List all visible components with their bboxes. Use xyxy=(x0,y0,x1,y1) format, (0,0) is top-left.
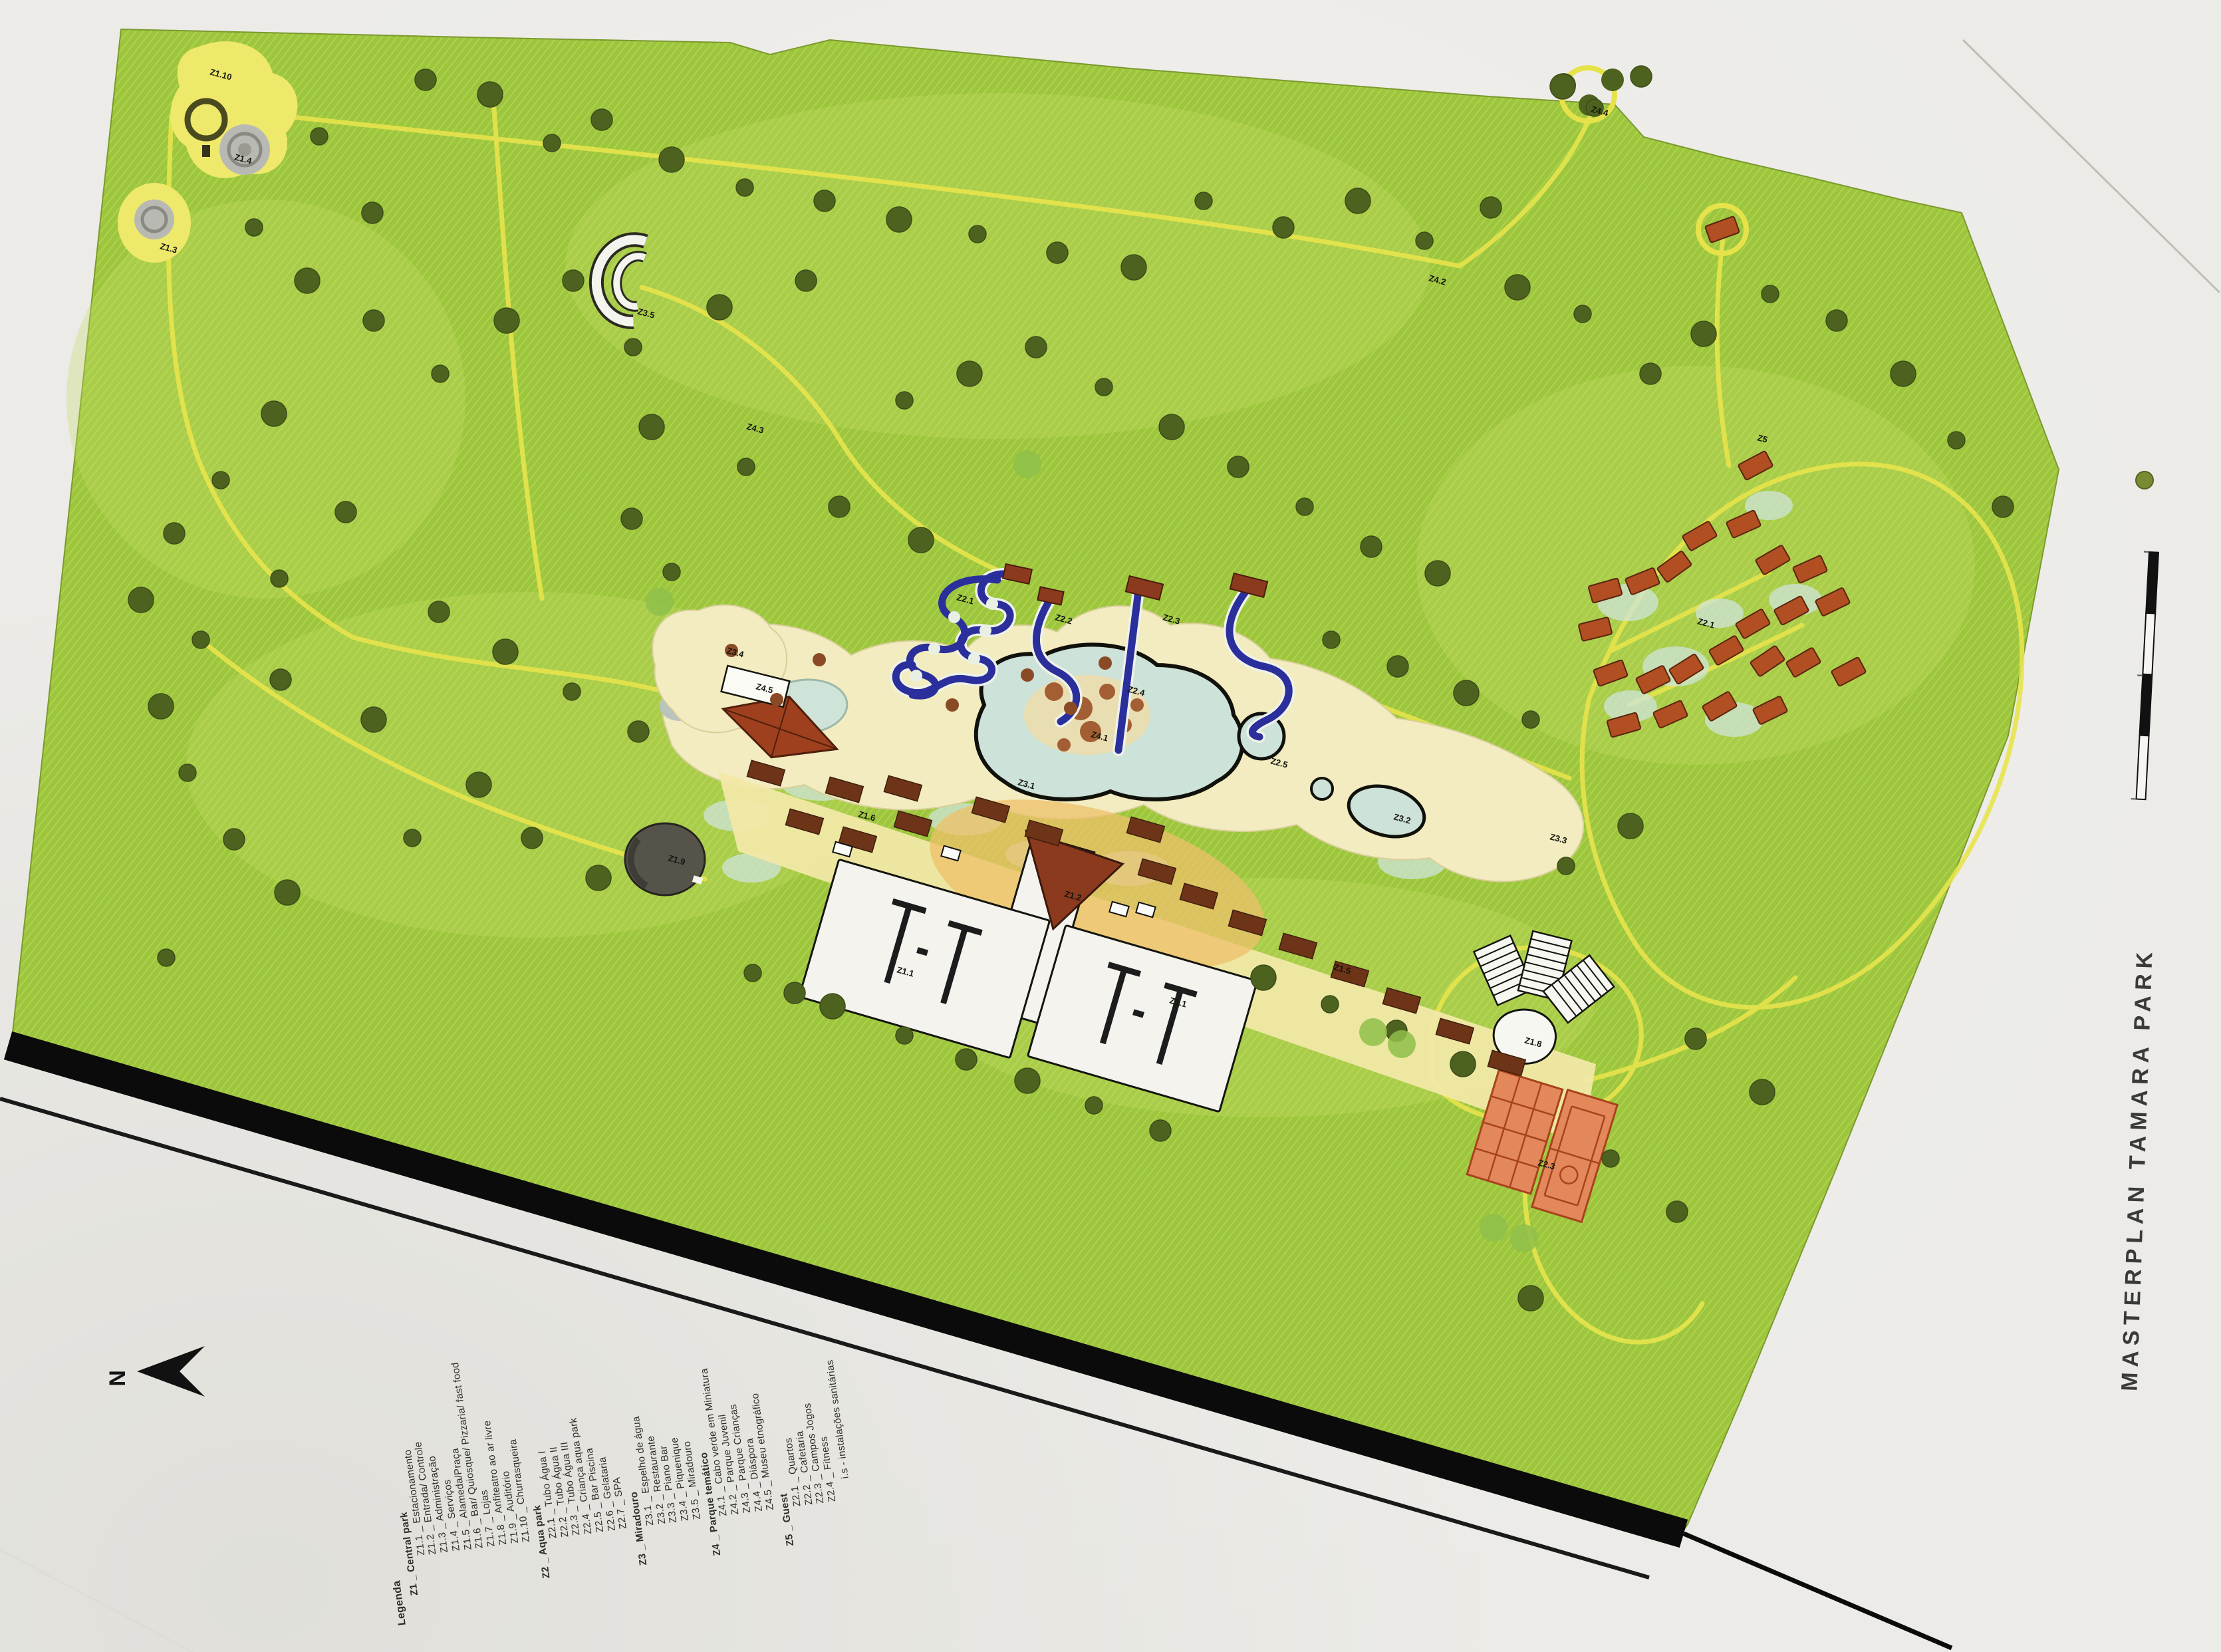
tree xyxy=(295,268,320,293)
tree xyxy=(586,865,611,891)
tree xyxy=(245,219,263,236)
tree xyxy=(628,721,649,742)
tree xyxy=(179,764,196,781)
tree xyxy=(1296,498,1313,515)
tree xyxy=(1159,414,1184,440)
tree xyxy=(543,134,561,152)
tree xyxy=(223,829,245,850)
tree xyxy=(1480,197,1502,218)
tree xyxy=(466,772,491,797)
tree xyxy=(270,669,291,690)
tree xyxy=(148,694,174,719)
tree xyxy=(212,472,229,489)
tree xyxy=(1345,188,1371,213)
tree xyxy=(563,270,584,291)
auditorium xyxy=(625,823,705,895)
tree xyxy=(896,1027,913,1044)
tree xyxy=(1121,255,1146,280)
sand-tree xyxy=(1064,702,1077,715)
tree xyxy=(1085,1097,1103,1114)
tree xyxy=(1251,965,1276,990)
north-arrow-glyph xyxy=(137,1346,205,1397)
tree xyxy=(1640,363,1661,384)
tree xyxy=(1750,1079,1775,1105)
tree-light xyxy=(1388,1030,1416,1058)
tree xyxy=(1666,1201,1688,1222)
tree xyxy=(1228,456,1249,478)
tree xyxy=(361,707,386,732)
tree xyxy=(1361,536,1382,557)
plunge-pool xyxy=(1311,778,1333,799)
tree xyxy=(1454,680,1479,706)
north-arrow: N xyxy=(105,1318,225,1418)
tree xyxy=(1321,996,1339,1013)
tree xyxy=(1416,232,1433,249)
tree xyxy=(1150,1120,1171,1141)
tree xyxy=(362,202,383,223)
sand-tree xyxy=(1021,668,1034,682)
tree xyxy=(1550,74,1575,99)
tree xyxy=(432,365,449,382)
tree xyxy=(969,225,986,243)
masterplan-map: Z1.10Z1.4Z1.3Z3.5Z4.5Z1.9Z3.4Z2.1Z2.2Z2.… xyxy=(0,0,2221,1652)
tree xyxy=(624,339,642,356)
tree xyxy=(1025,337,1047,358)
tree-light xyxy=(646,588,674,616)
sand-tree xyxy=(1099,656,1112,670)
tree xyxy=(1095,378,1112,396)
tree xyxy=(493,639,518,664)
tree xyxy=(820,994,845,1019)
tree xyxy=(158,949,175,966)
tree xyxy=(1948,432,1965,449)
sand-tree xyxy=(770,693,783,706)
tree xyxy=(736,179,753,196)
paper-crease xyxy=(0,1550,193,1652)
tree xyxy=(1602,1150,1619,1167)
tree xyxy=(1047,242,1068,263)
tree xyxy=(621,508,642,529)
tree xyxy=(1691,321,1716,346)
tree xyxy=(428,601,450,622)
tree xyxy=(415,69,436,90)
tree xyxy=(271,570,288,587)
tree xyxy=(311,128,328,145)
paper-crease xyxy=(1963,40,2220,293)
tree xyxy=(363,310,384,331)
tree xyxy=(663,563,680,581)
tree xyxy=(1618,813,1643,839)
tree xyxy=(1631,66,1652,87)
tree xyxy=(1685,1028,1706,1049)
tree xyxy=(1450,1051,1476,1077)
tree xyxy=(814,190,835,211)
tree xyxy=(1826,310,1847,331)
tree xyxy=(1574,305,1591,323)
tree xyxy=(192,631,209,648)
tree xyxy=(477,82,503,107)
tree xyxy=(261,401,287,426)
tree xyxy=(164,523,185,544)
tree xyxy=(956,1049,977,1070)
sand-tree xyxy=(946,698,959,712)
tree xyxy=(908,527,934,553)
tree xyxy=(521,827,543,849)
tree xyxy=(275,880,300,905)
tree xyxy=(1505,275,1530,300)
tree xyxy=(737,458,755,476)
tree xyxy=(1387,656,1408,677)
tree xyxy=(795,270,817,291)
tree-light xyxy=(1510,1224,1538,1252)
tree xyxy=(639,414,664,440)
tree xyxy=(659,147,684,172)
tree xyxy=(1015,1068,1040,1093)
tree xyxy=(1323,631,1340,648)
tree xyxy=(1522,711,1539,728)
tree xyxy=(335,501,356,523)
tree xyxy=(1273,217,1294,238)
tree-light xyxy=(1359,1018,1387,1046)
legend: Legenda Z1 _ Central parkZ1.1 _ Estacion… xyxy=(356,1245,862,1626)
sand-tree xyxy=(813,653,826,666)
west-feature xyxy=(118,183,191,263)
tree-light xyxy=(1480,1214,1507,1242)
tree xyxy=(1992,496,2014,517)
tree xyxy=(128,587,154,613)
tree xyxy=(591,109,612,130)
tree xyxy=(744,964,761,982)
tree xyxy=(1762,285,1779,303)
scanned-masterplan-sheet: { "title": "MASTERPLAN TAMARA PARK", "co… xyxy=(0,0,2221,1652)
tree xyxy=(563,683,581,700)
tree xyxy=(829,496,850,517)
scale-bar xyxy=(2131,472,2158,799)
north-label: N xyxy=(105,1370,131,1387)
tree xyxy=(784,982,805,1004)
tree xyxy=(404,829,421,847)
tree xyxy=(494,308,519,333)
tree xyxy=(1518,1286,1543,1311)
tree xyxy=(896,392,913,409)
tree xyxy=(1891,361,1916,386)
tree xyxy=(1425,561,1450,586)
tree xyxy=(886,207,912,232)
tree xyxy=(707,295,732,320)
tree xyxy=(1195,192,1212,209)
tree xyxy=(957,361,982,386)
tree-light xyxy=(1013,450,1041,478)
tree xyxy=(1557,857,1575,875)
